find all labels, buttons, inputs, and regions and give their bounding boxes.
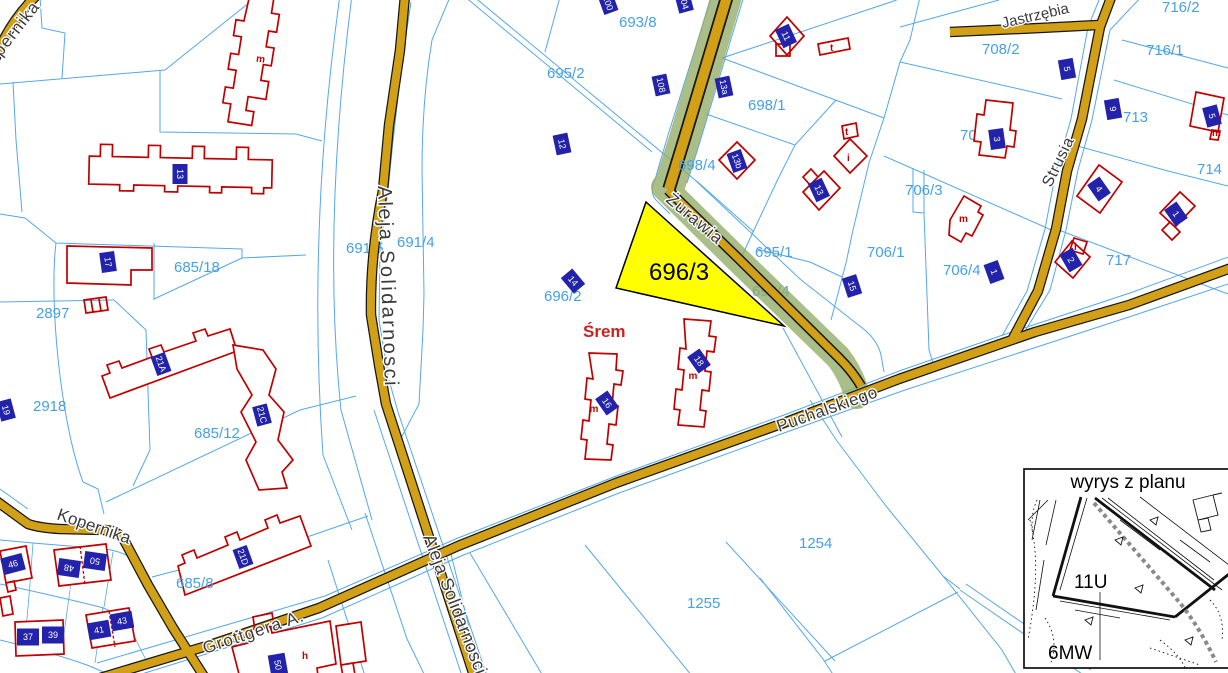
svg-text:41: 41	[93, 624, 105, 636]
svg-text:717: 717	[1106, 252, 1131, 269]
svg-text:706/1: 706/1	[867, 244, 905, 261]
svg-text:696/3: 696/3	[649, 259, 709, 286]
svg-text:1255: 1255	[687, 595, 720, 612]
svg-text:693/8: 693/8	[619, 14, 657, 31]
svg-text:685/18: 685/18	[174, 259, 220, 276]
svg-text:m: m	[1212, 128, 1221, 139]
svg-text:m: m	[689, 371, 698, 382]
svg-text:11U: 11U	[1074, 572, 1107, 593]
svg-text:1254: 1254	[799, 535, 832, 552]
svg-text:698/4: 698/4	[678, 157, 716, 174]
svg-text:706/3: 706/3	[905, 182, 943, 199]
svg-text:713: 713	[1123, 109, 1148, 126]
svg-text:h: h	[302, 651, 308, 662]
svg-text:50: 50	[272, 659, 284, 671]
svg-text:17: 17	[102, 256, 113, 267]
svg-text:698/1: 698/1	[748, 97, 786, 114]
svg-text:37: 37	[23, 632, 33, 642]
svg-text:2918: 2918	[33, 398, 66, 415]
svg-text:716/1: 716/1	[1146, 42, 1184, 59]
svg-text:6MW: 6MW	[1048, 643, 1092, 664]
svg-text:685/12: 685/12	[194, 425, 240, 442]
svg-text:691/4: 691/4	[397, 234, 435, 251]
svg-text:12: 12	[556, 138, 568, 150]
svg-text:m: m	[959, 214, 968, 225]
svg-text:695/1: 695/1	[755, 244, 793, 261]
svg-text:wyrys z planu: wyrys z planu	[1069, 472, 1185, 493]
svg-text:706/4: 706/4	[943, 262, 981, 279]
svg-text:50: 50	[89, 555, 100, 566]
svg-text:48: 48	[63, 562, 74, 573]
svg-text:m: m	[255, 53, 266, 65]
svg-text:Śrem: Śrem	[583, 322, 626, 341]
svg-text:695/2: 695/2	[547, 65, 585, 82]
svg-text:43: 43	[116, 615, 128, 627]
svg-text:714: 714	[1197, 161, 1222, 178]
svg-text:i: i	[847, 153, 850, 164]
svg-text:13: 13	[175, 169, 185, 179]
svg-text:708/2: 708/2	[982, 41, 1020, 58]
svg-text:685/8: 685/8	[176, 575, 214, 592]
svg-text:716/2: 716/2	[1162, 0, 1200, 16]
svg-text:39: 39	[48, 630, 58, 640]
svg-text:2897: 2897	[36, 305, 69, 322]
svg-text:m: m	[590, 404, 599, 415]
